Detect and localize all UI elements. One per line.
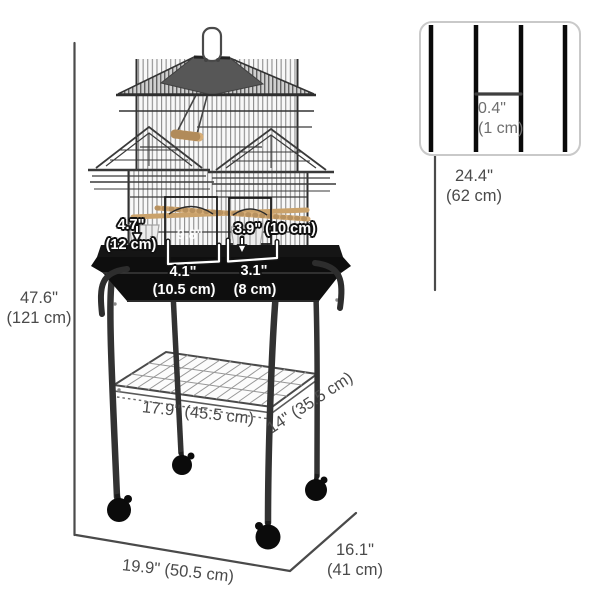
left-door-width-cm-label: (10.5 cm) xyxy=(144,283,224,299)
birdcage-illustration xyxy=(0,0,600,600)
bar-spacing-label: 0.4" (1 cm) xyxy=(478,99,523,138)
product-dimension-diagram: 47.6" (121 cm) 24.4" (62 cm) 0.4" (1 cm)… xyxy=(0,0,600,600)
left-door-depth-inches-label: 4.7" xyxy=(103,218,159,234)
partial-hidden-label: 9.8" xyxy=(177,226,203,242)
total-height-label: 47.6" (121 cm) xyxy=(2,288,76,328)
caster-wheels xyxy=(107,452,328,550)
right-door-width-cm-label: (8 cm) xyxy=(226,283,284,299)
carry-handle xyxy=(203,28,221,62)
left-door-depth-cm-label: (12 cm) xyxy=(95,238,167,254)
cage-height-label: 24.4" (62 cm) xyxy=(438,166,510,206)
right-door-label: 3.9" (10 cm) xyxy=(222,222,328,238)
base-depth-label: 16.1" (41 cm) xyxy=(319,540,391,580)
right-door-width-inches-label: 3.1" xyxy=(226,264,282,280)
left-door-width-inches-label: 4.1" xyxy=(155,265,211,281)
